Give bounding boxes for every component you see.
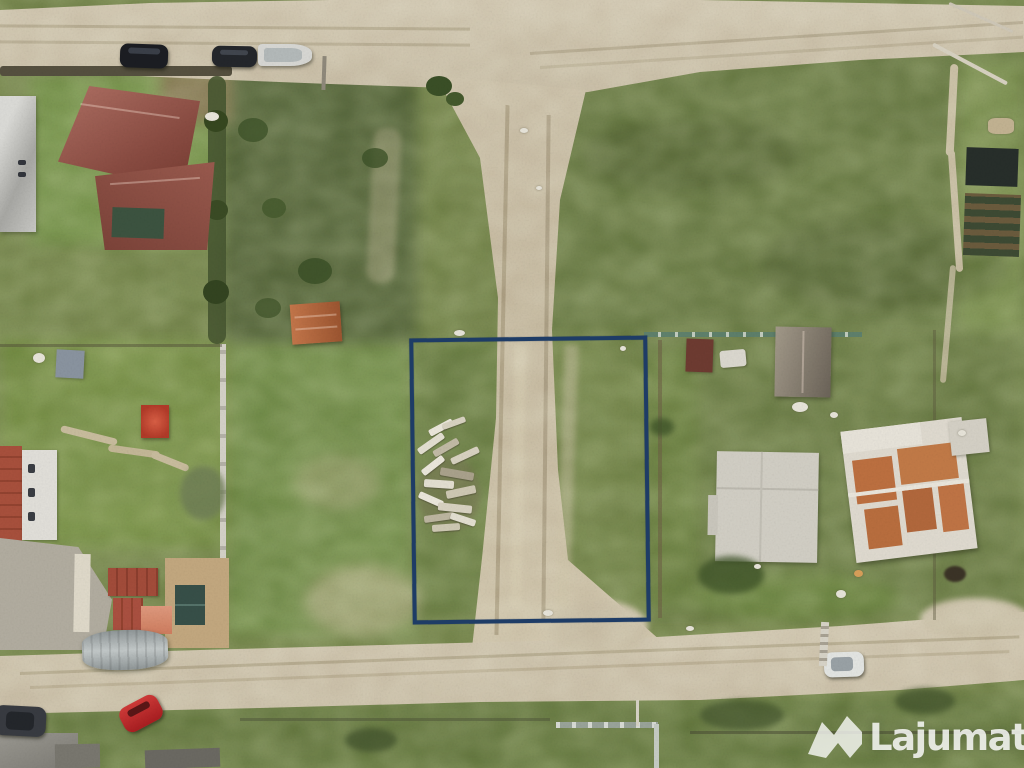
lajumate-logo-icon bbox=[804, 712, 866, 762]
watermark: Lajumate .ro bbox=[804, 712, 1024, 762]
watermark-brand: Lajumate bbox=[869, 719, 1024, 756]
aerial-photo: Lajumate .ro bbox=[0, 0, 1024, 768]
plot-boundary-outline bbox=[409, 336, 650, 625]
